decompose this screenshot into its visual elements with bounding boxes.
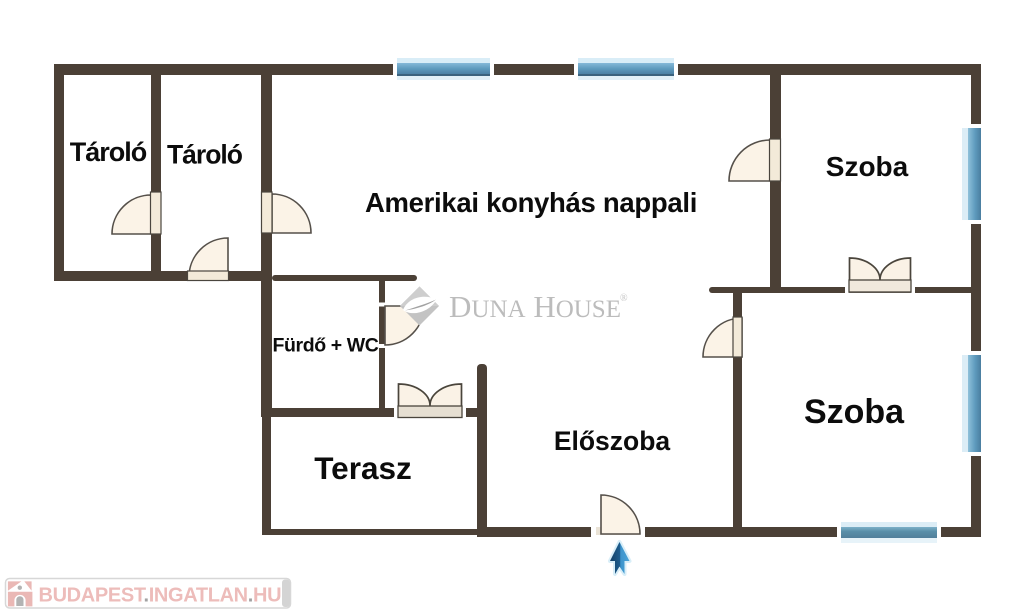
svg-text:BUDAPEST.INGATLAN.HU: BUDAPEST.INGATLAN.HU	[39, 585, 282, 607]
svg-text:Szoba: Szoba	[804, 393, 905, 431]
svg-text:DUNA HOUSE: DUNA HOUSE	[449, 289, 621, 324]
svg-text:Szoba: Szoba	[826, 151, 909, 182]
svg-text:Amerikai konyhás nappali: Amerikai konyhás nappali	[365, 187, 697, 218]
svg-text:®: ®	[620, 293, 628, 304]
svg-text:Terasz: Terasz	[314, 450, 411, 486]
svg-text:Tároló: Tároló	[167, 140, 243, 170]
svg-text:Előszoba: Előszoba	[554, 426, 671, 456]
svg-text:Fürdő + WC: Fürdő + WC	[273, 335, 379, 357]
svg-text:Tároló: Tároló	[70, 137, 147, 167]
